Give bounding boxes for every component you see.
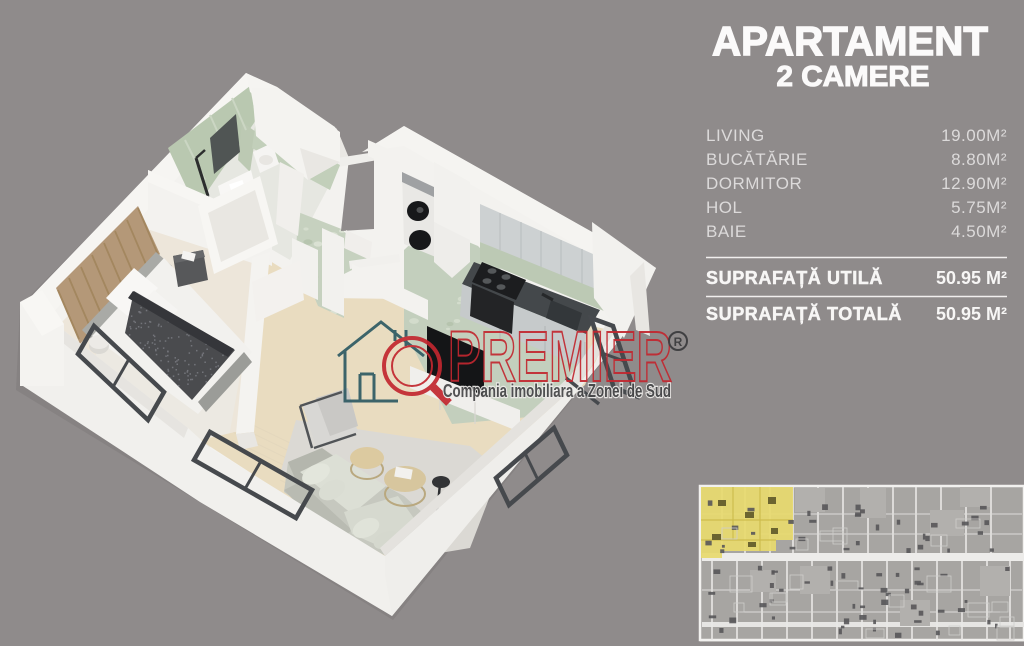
svg-text:12.90M²: 12.90M² bbox=[941, 174, 1007, 193]
svg-text:LIVING: LIVING bbox=[706, 126, 765, 145]
svg-text:DORMITOR: DORMITOR bbox=[706, 174, 802, 193]
svg-text:8.80M²: 8.80M² bbox=[951, 150, 1007, 169]
svg-text:APARTAMENT: APARTAMENT bbox=[712, 18, 988, 64]
svg-text:BUCĂTĂRIE: BUCĂTĂRIE bbox=[706, 150, 808, 169]
svg-text:HOL: HOL bbox=[706, 198, 742, 217]
svg-text:Compania imobiliara a Zonei de: Compania imobiliara a Zonei de Sud bbox=[443, 381, 671, 401]
svg-text:50.95 M²: 50.95 M² bbox=[936, 304, 1007, 324]
svg-text:R: R bbox=[674, 335, 683, 349]
svg-text:SUPRAFAȚĂ TOTALĂ: SUPRAFAȚĂ TOTALĂ bbox=[706, 303, 902, 324]
svg-text:BAIE: BAIE bbox=[706, 222, 747, 241]
svg-text:5.75M²: 5.75M² bbox=[951, 198, 1007, 217]
svg-text:19.00M²: 19.00M² bbox=[941, 126, 1007, 145]
svg-text:2 CAMERE: 2 CAMERE bbox=[777, 61, 930, 93]
svg-text:4.50M²: 4.50M² bbox=[951, 222, 1007, 241]
svg-text:SUPRAFAȚĂ UTILĂ: SUPRAFAȚĂ UTILĂ bbox=[706, 267, 883, 288]
svg-text:50.95 M²: 50.95 M² bbox=[936, 268, 1007, 288]
